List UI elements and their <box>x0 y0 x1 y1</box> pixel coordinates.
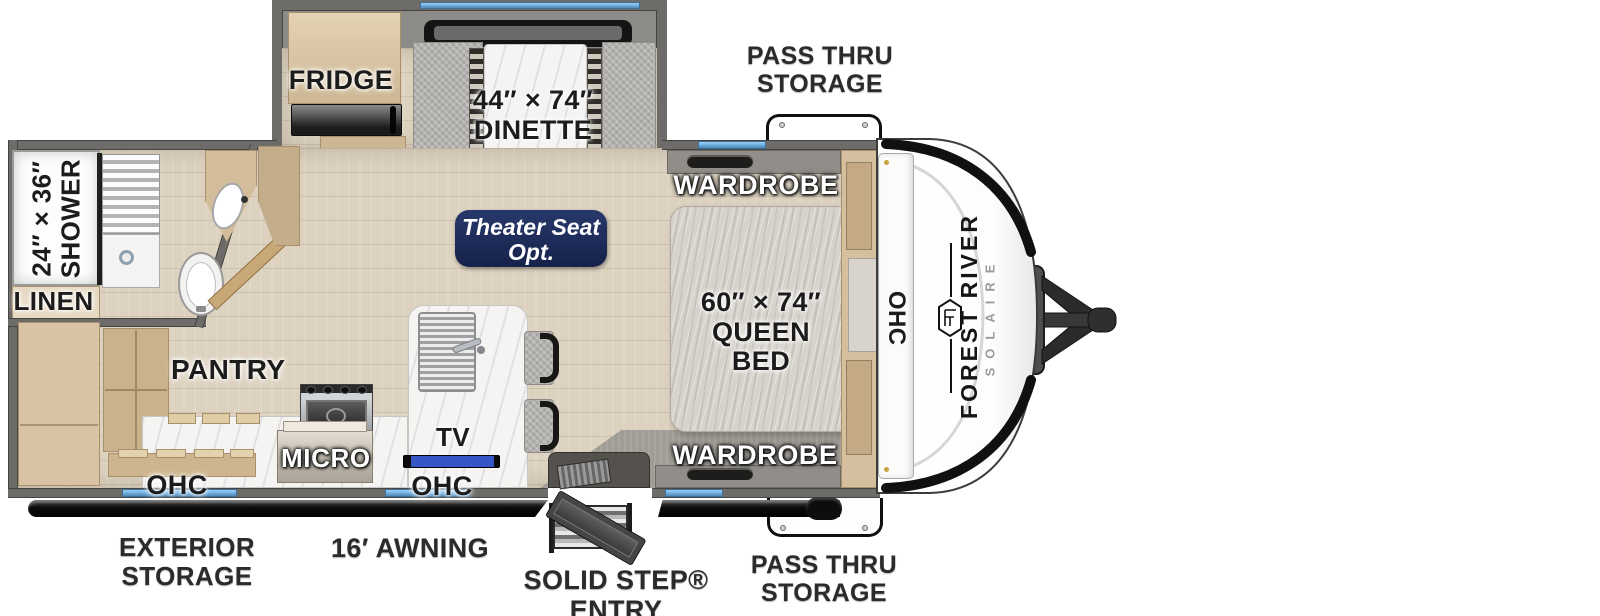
label-micro: MICRO <box>281 444 367 473</box>
wardrobe-top-handle <box>687 155 753 168</box>
label-pantry: PANTRY <box>171 355 275 386</box>
brand-model-text: SOLAIRE <box>983 256 998 377</box>
island-chair-2-arm <box>540 401 559 451</box>
awning-rail-left <box>28 500 548 517</box>
slideout-window-strip <box>420 2 640 9</box>
label-shower: 24″ × 36″ SHOWER <box>27 149 84 289</box>
bathroom-faucet <box>241 196 248 203</box>
label-wardrobe-bottom: WARDROBE <box>670 441 840 471</box>
wall-top-right <box>662 140 880 150</box>
label-fridge: FRIDGE <box>286 66 396 96</box>
brand-make-text: FOREST RIVER <box>956 213 982 419</box>
fridge-handle <box>390 106 396 134</box>
pass-thru-bottom-screw-right <box>862 525 868 531</box>
ohc-panel-screw-bottom <box>884 467 889 472</box>
window-strip-top-right <box>698 141 766 149</box>
kitchen-sink <box>418 312 476 392</box>
range-burner-3 <box>340 386 350 394</box>
label-pass-thru-top: PASS THRU STORAGE <box>730 42 910 98</box>
label-pass-thru-top-line1: PASS THRU <box>730 42 910 70</box>
island-chair-1-arm <box>540 333 559 383</box>
label-exterior-storage: EXTERIOR STORAGE <box>117 533 257 591</box>
range-burner-4 <box>357 386 367 394</box>
label-queen-bed: 60″ × 74″ QUEEN BED <box>681 288 841 377</box>
pantry-seam-h <box>105 389 167 391</box>
label-entry: SOLID STEP® ENTRY <box>486 565 746 616</box>
label-exterior-storage-line2: STORAGE <box>117 562 257 591</box>
range-burner-1 <box>306 386 316 394</box>
label-pass-thru-top-line2: STORAGE <box>730 70 910 98</box>
ohc-shelf-slat-1 <box>118 449 148 458</box>
floorplan-canvas: FOREST RIVER SOLAIRE Theater Seat Opt. F… <box>0 0 1600 616</box>
ohc-shelf-slat-3 <box>194 449 224 458</box>
theater-seat-line1: Theater Seat <box>455 215 607 240</box>
microwave-top-face <box>283 421 367 432</box>
label-ohc-kitchen-mid: OHC <box>408 472 476 502</box>
pass-thru-bottom-screw-left <box>780 525 786 531</box>
dinette-window-glass <box>434 26 622 40</box>
toilet-hinge <box>196 306 206 312</box>
pass-thru-top-screw-right <box>862 122 868 128</box>
exterior-storage-cabinet <box>18 322 100 486</box>
label-ohc-kitchen-left: OHC <box>143 471 211 501</box>
pass-thru-top-screw-left <box>779 122 785 128</box>
theater-seat-line2: Opt. <box>455 240 607 265</box>
label-awning: 16′ AWNING <box>330 533 490 563</box>
window-strip-bottom-3 <box>665 489 723 497</box>
counter-top-slats-2 <box>202 413 230 424</box>
label-exterior-storage-line1: EXTERIOR <box>117 533 257 562</box>
counter-top-slats <box>168 413 196 424</box>
range-burner-2 <box>323 386 333 394</box>
label-dinette-line1: 44″ × 74″ <box>458 86 608 116</box>
label-ohc-front: OHC <box>883 288 909 348</box>
label-tv: TV <box>425 423 481 452</box>
label-wardrobe-top: WARDROBE <box>671 171 841 201</box>
shower-drain <box>119 250 134 265</box>
label-pass-thru-bottom-line1: PASS THRU <box>734 551 914 579</box>
ohc-panel-screw-top <box>884 160 889 165</box>
hitch-coupler <box>1088 308 1116 332</box>
label-queen-bed-line2: QUEEN BED <box>681 318 841 377</box>
kitchen-faucet-base <box>477 346 485 354</box>
ohc-shelf-slat-4 <box>230 449 254 458</box>
label-pass-thru-bottom: PASS THRU STORAGE <box>734 551 914 607</box>
counter-top-slats-3 <box>236 413 260 424</box>
label-dinette-line2: DINETTE <box>458 116 608 146</box>
fridge-front <box>291 104 402 136</box>
label-dinette: 44″ × 74″ DINETTE <box>458 86 608 145</box>
label-pass-thru-bottom-line2: STORAGE <box>734 579 914 607</box>
label-shower-line2: SHOWER <box>56 149 85 289</box>
shower-door <box>102 154 160 234</box>
exterior-storage-cabinet-seam <box>20 424 98 426</box>
awning-roller-cap <box>806 497 842 520</box>
hitch-tongue <box>1044 313 1092 327</box>
tv <box>403 455 500 468</box>
theater-seat-option-badge: Theater Seat Opt. <box>455 210 607 267</box>
ohc-shelf-slat-2 <box>156 449 186 458</box>
label-linen: LINEN <box>8 287 99 316</box>
label-shower-line1: 24″ × 36″ <box>27 149 56 289</box>
label-queen-bed-line1: 60″ × 74″ <box>681 288 841 318</box>
